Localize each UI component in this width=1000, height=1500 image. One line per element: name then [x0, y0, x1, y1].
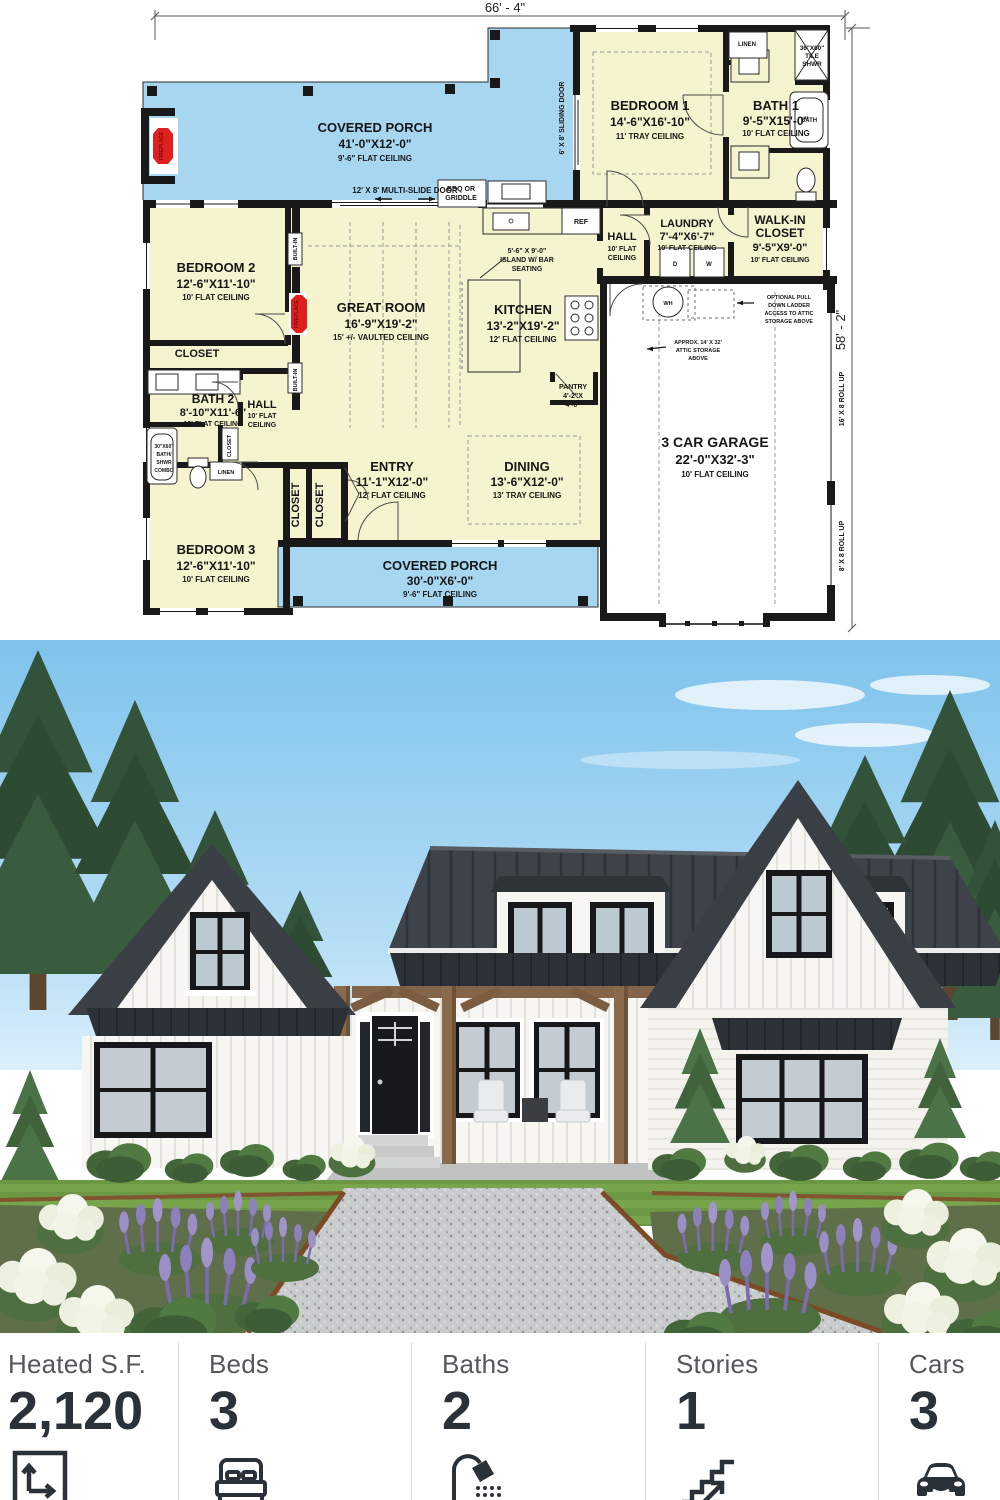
- svg-text:30'-0"X6'-0": 30'-0"X6'-0": [407, 574, 473, 588]
- svg-text:GRIDDLE: GRIDDLE: [445, 195, 477, 202]
- svg-text:HALL: HALL: [247, 399, 277, 411]
- floor-plan: 66' - 4" 58' - 2" COVERED PORCH 41'-0"X1…: [0, 0, 1000, 640]
- svg-text:ABOVE: ABOVE: [688, 356, 708, 362]
- svg-text:CEILING: CEILING: [248, 422, 277, 429]
- car-icon: [909, 1446, 973, 1500]
- svg-text:FIREPLACE: FIREPLACE: [294, 299, 300, 328]
- svg-text:9'-6" FLAT CEILING: 9'-6" FLAT CEILING: [338, 154, 412, 163]
- svg-text:10' FLAT CEILING: 10' FLAT CEILING: [681, 470, 749, 479]
- svg-text:BEDROOM 2: BEDROOM 2: [177, 260, 256, 275]
- svg-text:12'-6"X11'-10": 12'-6"X11'-10": [176, 559, 255, 573]
- svg-text:W: W: [706, 262, 712, 268]
- svg-text:41'-0"X12'-0": 41'-0"X12'-0": [338, 137, 411, 151]
- svg-text:BUILT-IN: BUILT-IN: [293, 238, 299, 261]
- svg-text:DINING: DINING: [504, 459, 550, 474]
- svg-text:COVERED PORCH: COVERED PORCH: [318, 120, 433, 135]
- svg-text:COVERED PORCH: COVERED PORCH: [383, 558, 498, 573]
- svg-text:COMBO: COMBO: [154, 468, 173, 474]
- svg-text:ISLAND W/ BAR: ISLAND W/ BAR: [500, 257, 554, 264]
- stat-value: 2: [442, 1382, 645, 1440]
- svg-text:16'-9"X19'-2": 16'-9"X19'-2": [344, 317, 417, 331]
- area-icon: [8, 1446, 72, 1500]
- svg-text:16' X 8 ROLL UP: 16' X 8 ROLL UP: [839, 371, 846, 426]
- svg-text:CLOSET: CLOSET: [175, 348, 220, 360]
- svg-text:12' FLAT CEILING: 12' FLAT CEILING: [358, 491, 426, 500]
- svg-text:CLOSET: CLOSET: [290, 482, 302, 527]
- stat-value: 3: [909, 1382, 1000, 1440]
- svg-text:8'-10"X11'-6": 8'-10"X11'-6": [180, 407, 246, 419]
- stat-value: 2,120: [8, 1382, 178, 1440]
- svg-text:KITCHEN: KITCHEN: [494, 302, 552, 317]
- svg-text:36"X60": 36"X60": [800, 45, 825, 52]
- svg-text:9'-5"X15'-0": 9'-5"X15'-0": [743, 114, 809, 128]
- svg-text:14'-6"X16'-10": 14'-6"X16'-10": [610, 115, 690, 129]
- svg-text:12' FLAT CEILING: 12' FLAT CEILING: [489, 335, 557, 344]
- svg-text:10' FLAT CEILING: 10' FLAT CEILING: [182, 575, 250, 584]
- svg-text:13'-6"X12'-0": 13'-6"X12'-0": [490, 475, 563, 489]
- bed-icon: [209, 1446, 273, 1500]
- stat-value: 3: [209, 1382, 411, 1440]
- house-photo-illustration: [0, 640, 1000, 1333]
- svg-text:BEDROOM 1: BEDROOM 1: [611, 98, 690, 113]
- svg-text:STORAGE ABOVE: STORAGE ABOVE: [765, 319, 813, 325]
- stairs-icon: [676, 1446, 740, 1500]
- svg-text:ATTIC STORAGE: ATTIC STORAGE: [676, 348, 721, 354]
- svg-text:ENTRY: ENTRY: [370, 459, 414, 474]
- shower-icon: [442, 1446, 506, 1500]
- stat-baths: Baths 2: [411, 1343, 645, 1500]
- svg-text:10' FLAT: 10' FLAT: [248, 413, 277, 420]
- svg-text:CLOSET: CLOSET: [314, 482, 326, 527]
- svg-text:CLOSET: CLOSET: [756, 226, 805, 240]
- svg-text:4'-2"X: 4'-2"X: [563, 393, 583, 400]
- svg-text:BUILT-IN: BUILT-IN: [293, 369, 299, 392]
- svg-text:5'-6" X 9'-0": 5'-6" X 9'-0": [508, 248, 547, 255]
- svg-text:SHWR: SHWR: [802, 61, 822, 68]
- svg-text:4'-0": 4'-0": [565, 402, 580, 409]
- svg-text:30"X60": 30"X60": [154, 444, 174, 450]
- svg-text:BBQ OR: BBQ OR: [447, 186, 475, 193]
- svg-text:GREAT ROOM: GREAT ROOM: [337, 300, 426, 315]
- svg-text:HALL: HALL: [607, 231, 637, 243]
- svg-text:10' FLAT: 10' FLAT: [608, 246, 637, 253]
- stats-bar: Heated S.F. 2,120 Beds 3: [0, 1333, 1000, 1500]
- svg-text:SHWR: SHWR: [156, 460, 172, 466]
- svg-text:APPROX. 14' X 32': APPROX. 14' X 32': [674, 340, 723, 346]
- svg-text:8' X 8 ROLL UP: 8' X 8 ROLL UP: [839, 520, 846, 571]
- svg-text:TILE: TILE: [805, 53, 820, 60]
- stat-stories: Stories 1: [645, 1343, 878, 1500]
- svg-text:BATH 2: BATH 2: [192, 392, 235, 406]
- svg-text:LINEN: LINEN: [738, 42, 756, 48]
- svg-text:10' FLAT CEILING: 10' FLAT CEILING: [750, 257, 810, 264]
- svg-text:OPTIONAL PULL: OPTIONAL PULL: [767, 295, 812, 301]
- svg-text:ACCESS TO ATTIC: ACCESS TO ATTIC: [764, 311, 813, 317]
- svg-text:22'-0"X32'-3": 22'-0"X32'-3": [675, 452, 754, 467]
- svg-text:11'-1"X12'-0": 11'-1"X12'-0": [356, 475, 428, 489]
- svg-text:WALK-IN: WALK-IN: [754, 213, 805, 227]
- stat-label: Heated S.F.: [8, 1349, 178, 1380]
- svg-text:FIREPLACE: FIREPLACE: [159, 131, 165, 160]
- svg-text:CEILING: CEILING: [608, 255, 637, 262]
- house-photo: [0, 640, 1000, 1333]
- svg-text:3 CAR GARAGE: 3 CAR GARAGE: [661, 434, 768, 450]
- stat-value: 1: [676, 1382, 878, 1440]
- svg-text:DOWN LADDER: DOWN LADDER: [768, 303, 810, 309]
- house-plan-pin: 66' - 4" 58' - 2" COVERED PORCH 41'-0"X1…: [0, 0, 1000, 1500]
- multi-slide-label: 12' X 8' MULTI-SLIDE DOOR: [352, 186, 458, 195]
- sliding-door-label: 6' X 8' SLIDING DOOR: [559, 82, 566, 155]
- svg-text:15' +/- VAULTED CEILING: 15' +/- VAULTED CEILING: [333, 333, 429, 342]
- svg-text:BATH/: BATH/: [157, 452, 173, 458]
- svg-text:BEDROOM 3: BEDROOM 3: [177, 542, 256, 557]
- dim-right: 58' - 2": [833, 309, 848, 350]
- stat-heated-sf: Heated S.F. 2,120: [0, 1343, 178, 1500]
- svg-text:BATH 1: BATH 1: [753, 98, 799, 113]
- svg-text:13' TRAY CEILING: 13' TRAY CEILING: [493, 491, 562, 500]
- svg-text:11' TRAY CEILING: 11' TRAY CEILING: [616, 132, 684, 141]
- svg-text:CLOSET: CLOSET: [227, 434, 233, 457]
- stat-label: Cars: [909, 1349, 1000, 1380]
- svg-text:7'-4"X6'-7": 7'-4"X6'-7": [660, 231, 715, 243]
- dim-top: 66' - 4": [485, 0, 526, 15]
- stat-label: Baths: [442, 1349, 645, 1380]
- svg-text:LINEN: LINEN: [218, 470, 235, 476]
- svg-text:REF: REF: [574, 219, 589, 226]
- stat-beds: Beds 3: [178, 1343, 411, 1500]
- svg-text:SEATING: SEATING: [512, 266, 543, 273]
- svg-text:PANTRY: PANTRY: [559, 384, 587, 391]
- svg-text:WH: WH: [663, 301, 672, 307]
- svg-text:13'-2"X19'-2": 13'-2"X19'-2": [486, 319, 559, 333]
- svg-text:9'-5"X9'-0": 9'-5"X9'-0": [753, 242, 808, 254]
- svg-text:10' FLAT CEILING: 10' FLAT CEILING: [742, 129, 810, 138]
- stat-label: Beds: [209, 1349, 411, 1380]
- svg-text:D: D: [673, 262, 678, 268]
- stat-cars: Cars 3: [878, 1343, 1000, 1500]
- svg-text:10' FLAT CEILING: 10' FLAT CEILING: [183, 421, 243, 428]
- svg-text:BATH: BATH: [801, 118, 817, 124]
- floor-plan-drawing: 66' - 4" 58' - 2" COVERED PORCH 41'-0"X1…: [0, 0, 1000, 640]
- svg-text:10' FLAT CEILING: 10' FLAT CEILING: [182, 293, 250, 302]
- svg-text:12'-6"X11'-10": 12'-6"X11'-10": [176, 277, 255, 291]
- svg-text:9'-6" FLAT CEILING: 9'-6" FLAT CEILING: [403, 590, 477, 599]
- svg-text:LAUNDRY: LAUNDRY: [660, 218, 714, 230]
- stat-label: Stories: [676, 1349, 878, 1380]
- svg-text:10' FLAT CEILING: 10' FLAT CEILING: [657, 245, 717, 252]
- porch-back-wall: [320, 986, 685, 1188]
